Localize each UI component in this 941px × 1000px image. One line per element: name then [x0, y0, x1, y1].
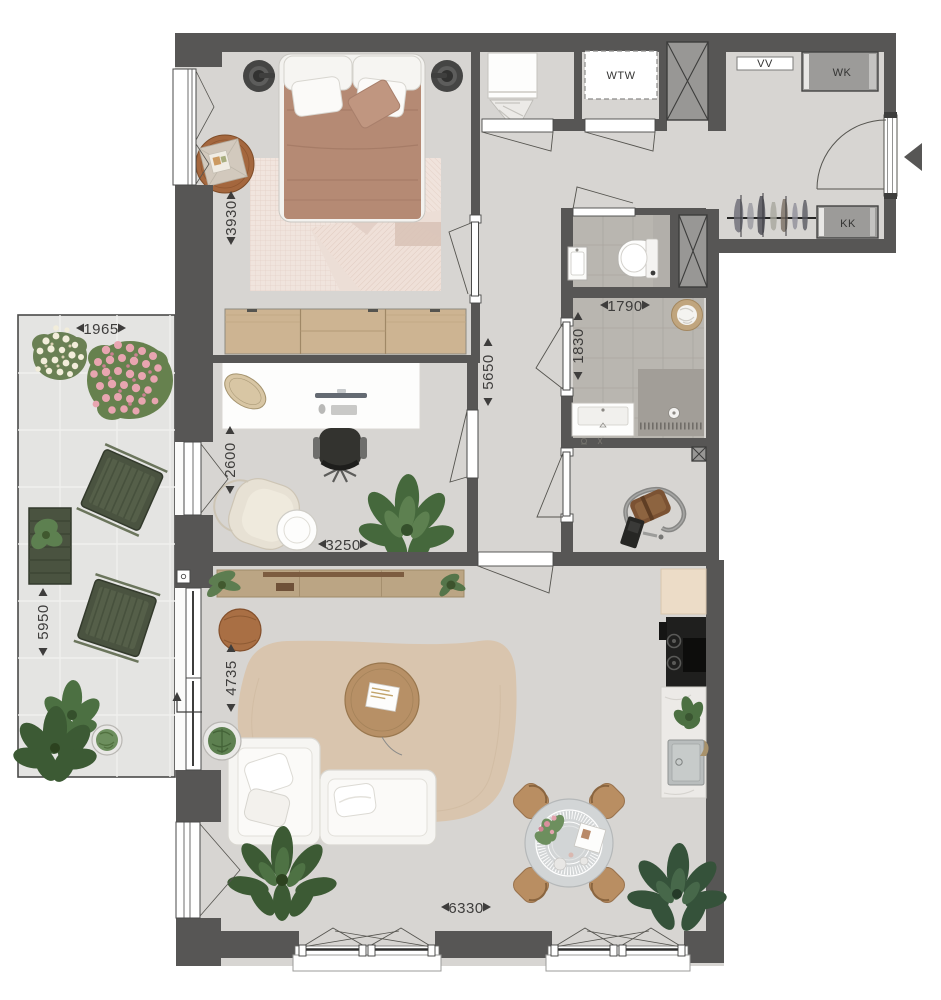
- svg-text:1830: 1830: [570, 328, 587, 363]
- svg-text:KK: KK: [840, 218, 856, 230]
- svg-text:5650: 5650: [480, 354, 497, 389]
- svg-text:5950: 5950: [35, 604, 52, 639]
- svg-text:1965: 1965: [83, 321, 118, 338]
- svg-text:2600: 2600: [222, 442, 239, 477]
- svg-text:4735: 4735: [223, 660, 240, 695]
- svg-text:3250: 3250: [325, 537, 360, 554]
- svg-text:WTW: WTW: [607, 70, 636, 82]
- svg-text:3930: 3930: [223, 200, 240, 235]
- svg-text:6330: 6330: [448, 900, 483, 917]
- svg-text:VV: VV: [757, 58, 773, 70]
- svg-text:1790: 1790: [607, 298, 642, 315]
- svg-text:WK: WK: [833, 67, 852, 79]
